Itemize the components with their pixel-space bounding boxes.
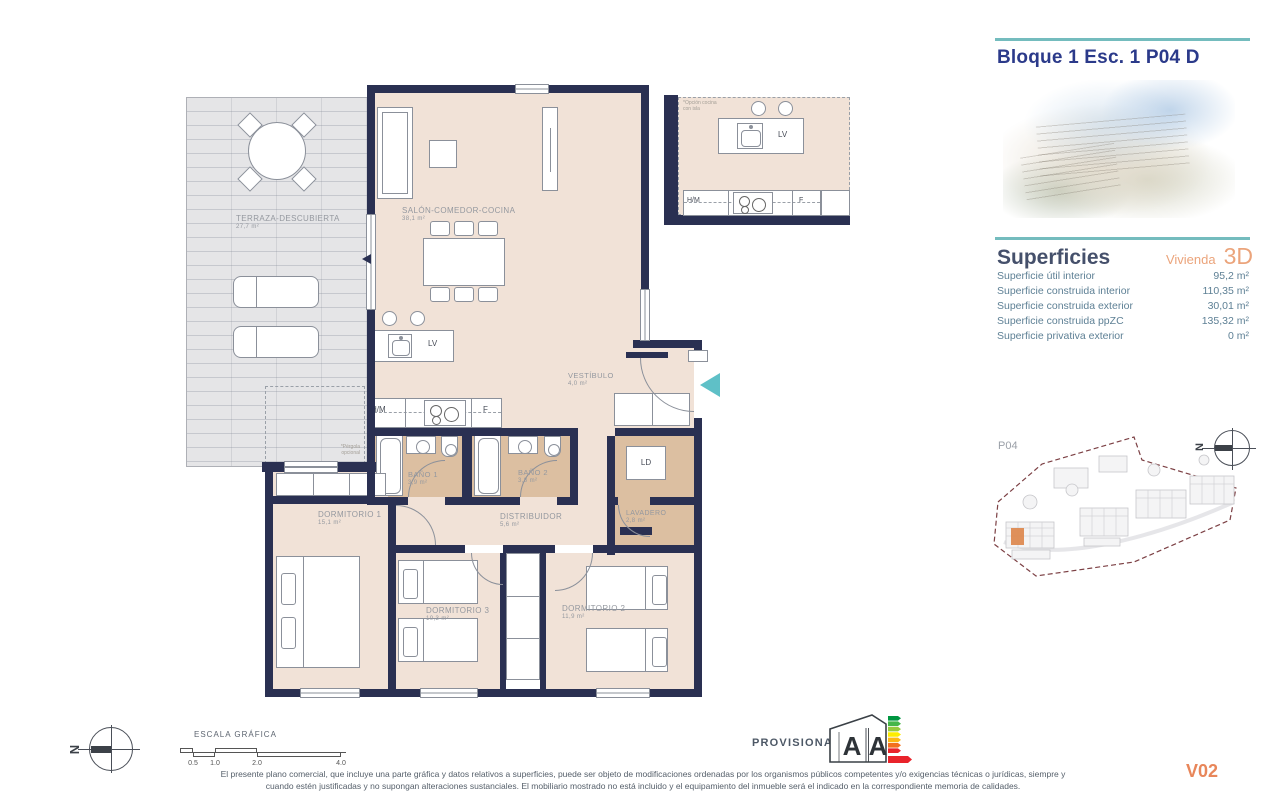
window (515, 84, 549, 94)
wall (664, 215, 850, 225)
kitchen-option-note: *Opción cocina con isla (683, 100, 717, 112)
side-table (429, 140, 457, 168)
wall (650, 497, 702, 505)
wardrobe (506, 553, 540, 680)
single-bed (586, 628, 668, 672)
dining-chair (478, 221, 498, 236)
double-bed (276, 556, 360, 668)
cooktop (424, 400, 466, 426)
wall (445, 497, 520, 505)
label-bano1: BAÑO 13,9 m² (408, 470, 438, 486)
sun-lounger (233, 326, 319, 358)
entrance-arrow-icon (700, 373, 720, 397)
label-dormitorio1: DORMITORIO 115,1 m² (318, 510, 381, 526)
energy-rating-icon: A A (826, 710, 918, 768)
superficies-header: Superficies Vivienda 3D (997, 243, 1253, 270)
tv-cabinet (542, 107, 558, 191)
wall (593, 545, 702, 553)
superficies-table: Superficie útil interior95,2 m² Superfic… (997, 269, 1249, 344)
pergola-note: *Pérgola opcional (302, 444, 360, 456)
toilet (544, 436, 561, 457)
window (300, 688, 360, 698)
label-salon: SALÓN-COMEDOR-COCINA38,1 m² (402, 206, 515, 222)
dining-chair (430, 221, 450, 236)
wall (396, 545, 465, 553)
highlighted-unit (1011, 528, 1024, 545)
energy-arrows (888, 716, 912, 763)
divider (995, 38, 1250, 41)
wall (540, 553, 546, 689)
wall (633, 340, 702, 348)
wall (265, 496, 367, 504)
table-row: Superficie privativa exterior0 m² (997, 329, 1249, 344)
wall (367, 497, 408, 505)
label-dormitorio3: DORMITORIO 310,3 m² (426, 606, 489, 622)
wall (607, 497, 618, 505)
wall (367, 428, 375, 505)
vivienda-label: Vivienda (1166, 252, 1216, 267)
dining-chair (454, 287, 474, 302)
bathtub (474, 434, 501, 496)
single-bed (398, 560, 478, 604)
dining-table (423, 238, 505, 286)
terrace-round-table (248, 122, 306, 180)
kitchen-island (372, 330, 454, 362)
graphic-scale: ESCALA GRÁFICA 0.5 1.0 2.0 4.0 (178, 728, 358, 772)
bath-sink (508, 436, 538, 454)
label-lavadero: LAVADERO2,8 m² (626, 510, 666, 524)
window (596, 688, 650, 698)
compass-icon: N (1196, 424, 1260, 476)
dining-chair (430, 287, 450, 302)
window (284, 461, 338, 473)
counter-end (821, 190, 850, 216)
window (420, 688, 478, 698)
wall (664, 95, 678, 217)
cooktop (733, 192, 773, 214)
dishwasher-label: LV (778, 130, 787, 139)
toilet (441, 436, 458, 457)
door-marker-icon (362, 254, 371, 264)
bar-stool (778, 101, 793, 116)
wall (388, 505, 396, 697)
building-rendering (1003, 80, 1235, 218)
fridge-label: F (483, 405, 488, 414)
fridge-label: F (799, 197, 803, 204)
wall (367, 428, 578, 436)
label-distribuidor: DISTRIBUIDOR5,6 m² (500, 512, 562, 528)
laundry-label: LD (626, 458, 666, 467)
legal-disclaimer: El presente plano comercial, que incluye… (95, 768, 1191, 792)
label-vestibulo: VESTÍBULO4,0 m² (568, 371, 614, 387)
label-terraza: TERRAZA-DESCUBIERTA27,7 m² (236, 214, 340, 230)
table-row: Superficie construida exterior30,01 m² (997, 299, 1249, 314)
bar-stool (751, 101, 766, 116)
dining-chair (454, 221, 474, 236)
label-dormitorio2: DORMITORIO 211,9 m² (562, 604, 625, 620)
dining-chair (478, 287, 498, 302)
emissions-letter: A (869, 731, 888, 761)
window (640, 289, 650, 341)
kitchen-sink (388, 334, 412, 358)
wall (570, 436, 578, 497)
superficies-heading: Superficies (997, 246, 1166, 270)
wall (503, 545, 555, 553)
bar-stool (410, 311, 425, 326)
oven-micro-label: H/M (687, 197, 700, 204)
vivienda-value: 3D (1224, 243, 1253, 270)
wall (367, 85, 649, 93)
sofa (377, 107, 413, 199)
table-row: Superficie útil interior95,2 m² (997, 269, 1249, 284)
page-title: Bloque 1 Esc. 1 P04 D (997, 47, 1200, 69)
wall (557, 497, 578, 505)
table-row: Superficie construida interior110,35 m² (997, 284, 1249, 299)
bath-sink (406, 436, 436, 454)
wall (607, 436, 615, 555)
sun-lounger (233, 276, 319, 308)
bar-stool (382, 311, 397, 326)
table-row: Superficie construida ppZC135,32 m² (997, 314, 1249, 329)
version-label: V02 (1186, 761, 1218, 782)
kitchen-sink (737, 123, 763, 149)
label-bano2: BAÑO 23,8 m² (518, 468, 548, 484)
single-bed (398, 618, 478, 662)
consumption-letter: A (843, 731, 862, 761)
dishwasher-label: LV (428, 339, 437, 348)
floorplan-sheet: *Pérgola opcional LV H/M F (0, 0, 1280, 800)
wall (462, 436, 472, 497)
divider (995, 237, 1250, 240)
wall (615, 428, 702, 436)
